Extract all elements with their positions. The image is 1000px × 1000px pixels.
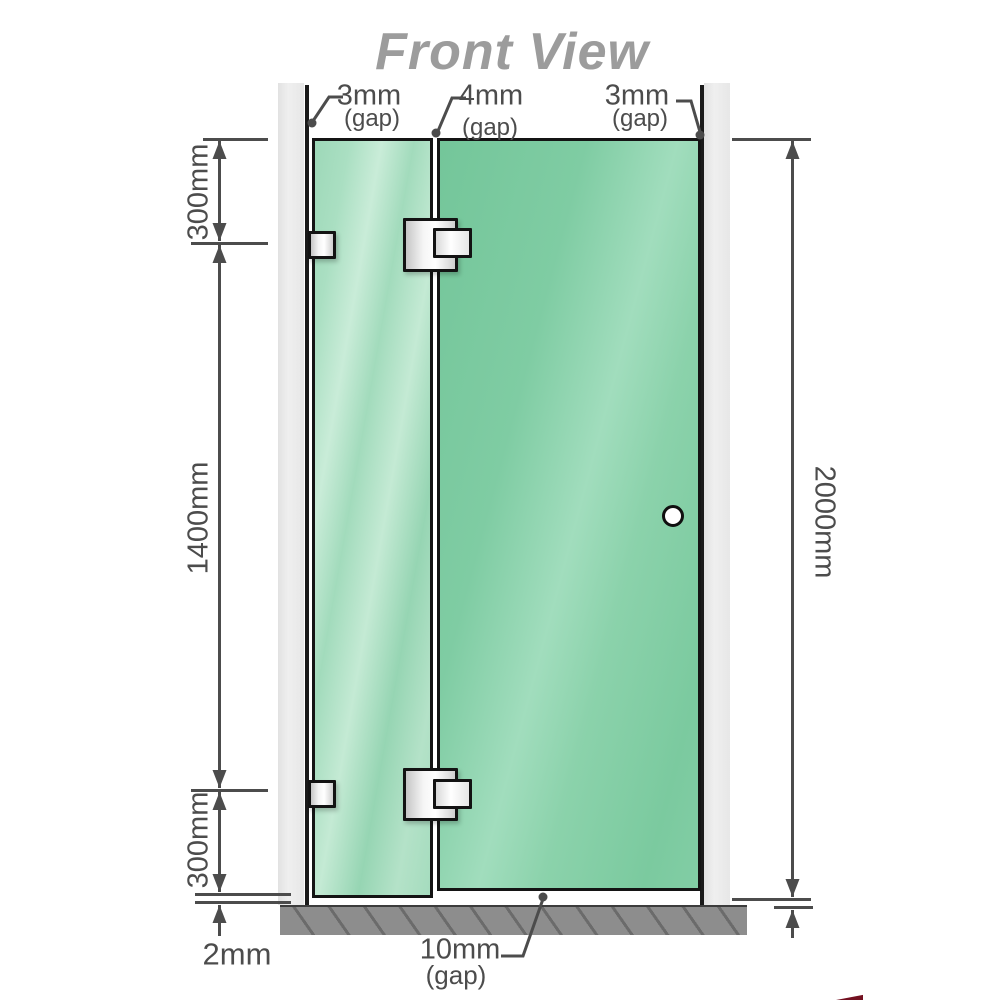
- wall-bracket-top: [308, 231, 336, 259]
- floor-base: [280, 905, 747, 935]
- dim-right-floor-gap: [786, 910, 800, 938]
- door-hinge-top-knuckle: [433, 228, 472, 258]
- right-wall: [704, 83, 730, 905]
- dim-label-4mm: 4mm: [459, 82, 523, 111]
- dim-right-2000: [786, 141, 800, 897]
- dim-label-1400mm: 1400mm: [185, 462, 214, 575]
- dim-label-2mm: 2mm: [203, 939, 272, 970]
- door-hinge-bottom-knuckle: [433, 779, 472, 809]
- corner-logo-sliver: [836, 994, 863, 1000]
- door-handle-knob: [662, 505, 684, 527]
- front-view-diagram: Front View: [0, 0, 1000, 1000]
- dim-label-2000mm: 2000mm: [810, 466, 839, 579]
- wall-bracket-bottom: [308, 780, 336, 808]
- left-wall: [278, 83, 304, 905]
- dim-left-300-top: [213, 141, 227, 241]
- dim-left-300-bottom: [213, 792, 227, 892]
- dim-label-300mm-bottom: 300mm: [185, 792, 214, 889]
- page-title: Front View: [375, 22, 649, 82]
- dim-label-3mm-right-gap: (gap): [612, 107, 668, 131]
- dim-left-2mm: [213, 905, 227, 936]
- dim-label-3mm-left-gap: (gap): [344, 107, 400, 131]
- dim-label-300mm-top: 300mm: [185, 144, 214, 241]
- dim-label-4mm-gap: (gap): [462, 116, 518, 140]
- dim-left-1400: [213, 245, 227, 788]
- dim-ticks-right: [732, 140, 813, 908]
- dim-label-10mm-gap: (gap): [426, 962, 487, 988]
